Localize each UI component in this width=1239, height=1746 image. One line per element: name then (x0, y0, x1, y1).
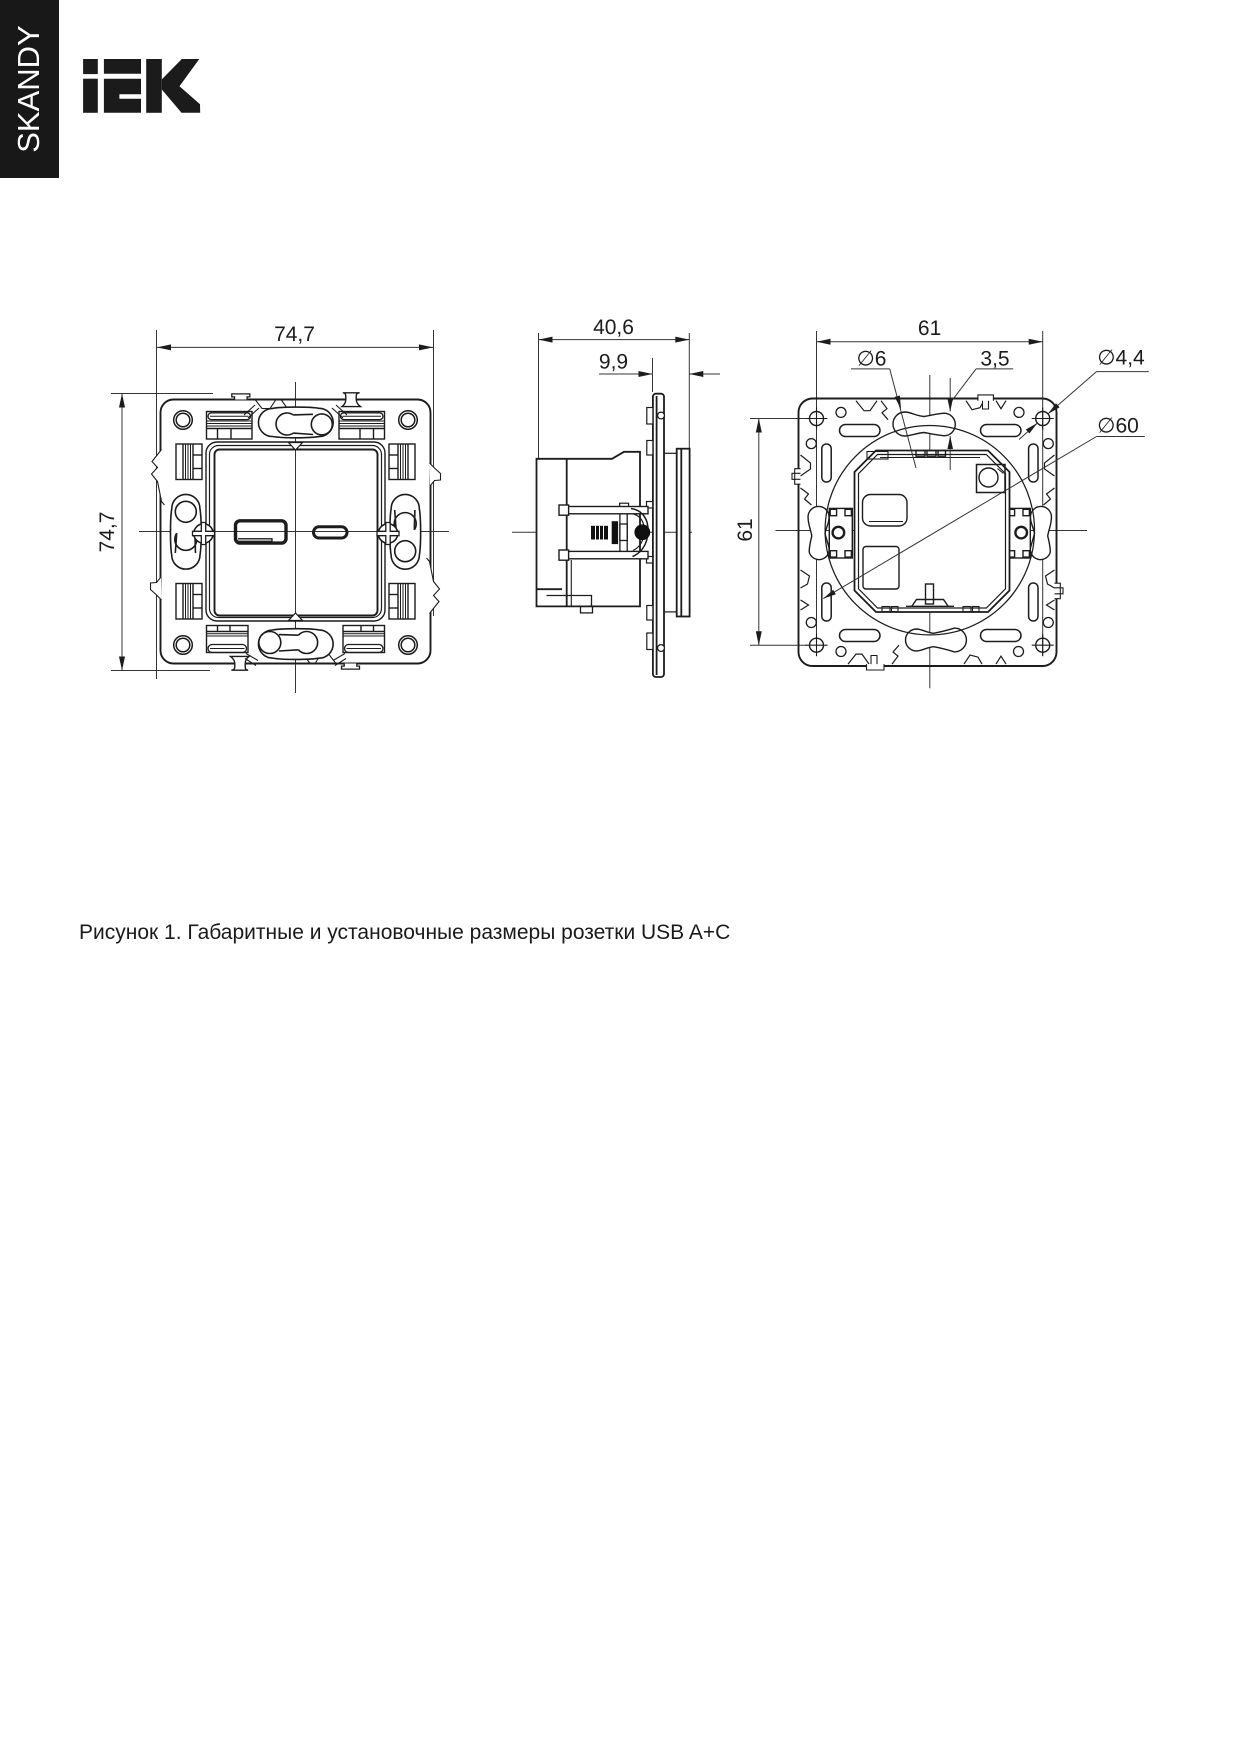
svg-text:74,7: 74,7 (274, 323, 315, 346)
svg-text:∅60: ∅60 (1097, 415, 1139, 438)
svg-text:∅4,4: ∅4,4 (1097, 347, 1145, 370)
svg-text:∅6: ∅6 (857, 348, 887, 371)
svg-text:40,6: 40,6 (593, 316, 634, 339)
svg-text:3,5: 3,5 (980, 348, 1009, 371)
svg-text:61: 61 (918, 317, 941, 340)
svg-text:9,9: 9,9 (599, 351, 628, 374)
